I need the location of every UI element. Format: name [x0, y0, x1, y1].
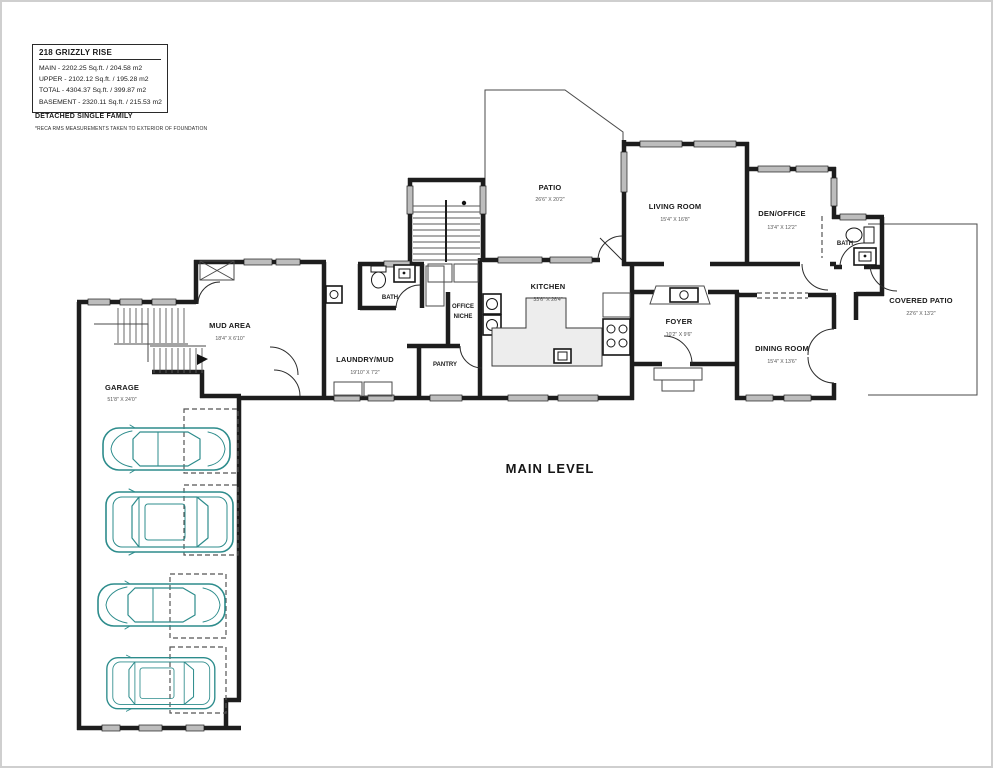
- parking-stalls: [170, 409, 238, 713]
- floorplan-svg: PATIO 26'6" X 20'2" LIVING ROOM 15'4" X …: [2, 2, 993, 768]
- room-label-living: LIVING ROOM: [649, 202, 702, 211]
- floorplan-page: 218 GRIZZLY RISE MAIN - 2202.25 Sq.ft. /…: [0, 0, 993, 768]
- car-4: [107, 655, 215, 711]
- room-label-patio: PATIO: [539, 183, 562, 192]
- room-label-foyer: FOYER: [666, 317, 693, 326]
- room-dims-covered-patio: 22'6" X 13'2": [906, 311, 935, 317]
- room-label-office-niche-2: NICHE: [454, 314, 473, 320]
- room-dims-living: 15'4" X 16'8": [660, 217, 689, 223]
- stairs-garage: [94, 308, 208, 373]
- room-label-kitchen: KITCHEN: [531, 282, 566, 291]
- car-1: [103, 425, 230, 473]
- patio-outline: [485, 90, 623, 258]
- room-label-laundry: LAUNDRY/MUD: [336, 355, 394, 364]
- room-dims-kitchen: 33'6" X 26'4": [533, 297, 562, 303]
- room-label-office-niche-1: OFFICE: [452, 304, 474, 310]
- room-label-den: DEN/OFFICE: [758, 209, 805, 218]
- room-dims-den: 13'4" X 12'2": [767, 225, 796, 231]
- foyer-steps: [654, 368, 702, 391]
- room-label-mud: MUD AREA: [209, 321, 251, 330]
- car-3: [98, 581, 225, 629]
- room-dims-patio: 26'6" X 20'2": [535, 197, 564, 203]
- room-dims-mud: 18'4" X 6'10": [215, 336, 244, 342]
- room-dims-foyer: 10'2" X 9'6": [666, 332, 693, 338]
- room-label-garage: GARAGE: [105, 383, 139, 392]
- stairs-upper: [413, 200, 480, 262]
- room-dims-garage: 51'8" X 24'0": [107, 397, 136, 403]
- office-niche-desk: [426, 266, 444, 306]
- room-label-covered-patio: COVERED PATIO: [889, 296, 953, 305]
- room-label-bath-left: BATH: [382, 295, 398, 301]
- room-label-dining: DINING ROOM: [755, 344, 809, 353]
- room-label-pantry: PANTRY: [433, 362, 457, 368]
- kitchen-island: [492, 298, 602, 366]
- bath-left-fixtures: [371, 265, 415, 288]
- room-dims-laundry: 19'10" X 7'2": [350, 370, 379, 376]
- covered-patio-outline: [868, 224, 977, 395]
- room-label-bath-right: BATH: [837, 241, 853, 247]
- windows: [88, 141, 866, 731]
- car-2: [106, 489, 233, 555]
- laundry-fixtures: [326, 264, 478, 396]
- room-dims-dining: 15'4" X 13'6": [767, 359, 796, 365]
- foyer-feature: [650, 286, 710, 304]
- level-label: MAIN LEVEL: [506, 461, 595, 476]
